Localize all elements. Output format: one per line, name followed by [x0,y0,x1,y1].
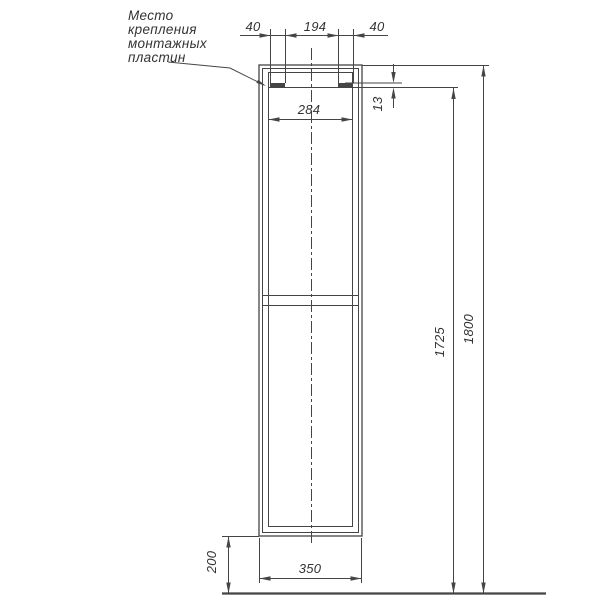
cabinet-mid-rect [263,69,359,533]
arrow-icon [260,576,271,580]
dim-label-plate-height: 13 [370,96,385,112]
cabinet [259,48,362,545]
mounting-plate-right [338,83,353,88]
dim-label-opening-width: 284 [297,102,321,117]
dim-label-plate-spacing: 194 [304,19,327,34]
arrow-icon [391,88,395,99]
arrow-icon [269,117,280,121]
note-line-2: крепления [128,22,197,37]
arrow-icon [226,537,230,548]
cabinet-outer-rect [259,65,362,536]
arrow-icon [481,583,485,594]
dim-label-total-height: 1800 [461,313,476,344]
note-line-3: монтажных [128,36,208,51]
dim-base-height: 200 [204,537,259,594]
leader-line [168,62,264,85]
arrow-icon [451,583,455,594]
arrow-icon [391,72,395,83]
mounting-plate-left [270,83,285,88]
dim-label-width: 350 [299,561,322,576]
technical-drawing: Место крепления монтажных пластин 40 194… [0,0,600,600]
dim-height-1800: 1800 [362,66,489,594]
arrow-icon [351,576,362,580]
arrow-icon [260,33,271,37]
dim-width-350: 350 [260,538,362,583]
dim-height-1725: 1725 [432,88,456,594]
dim-opening-width: 284 [269,102,353,122]
dim-label-right-offset: 40 [369,19,385,34]
dim-label-base-height: 200 [204,550,219,574]
arrow-icon [354,33,365,37]
arrow-icon [286,33,297,37]
arrow-icon [481,66,485,77]
arrow-icon [342,117,353,121]
leader-arrowhead-icon [256,80,266,86]
dim-label-mount-height: 1725 [432,326,447,357]
arrow-icon [328,33,339,37]
dim-label-left-offset: 40 [245,19,261,34]
arrow-icon [226,583,230,594]
arrow-icon [451,88,455,99]
cabinet-door-opening [269,73,353,527]
note-line-1: Место [128,8,174,23]
drawing-canvas: Место крепления монтажных пластин 40 194… [0,0,600,600]
